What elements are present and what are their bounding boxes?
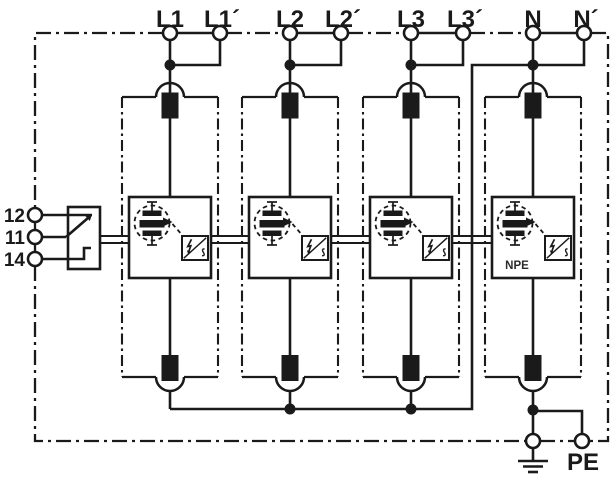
plug-contact-lower bbox=[519, 355, 547, 391]
trigger-circuit-icon bbox=[423, 236, 449, 260]
terminal-circle-12 bbox=[28, 208, 42, 222]
pe-label: PE bbox=[567, 449, 599, 476]
module-badge: NPE bbox=[505, 260, 529, 272]
signal-terminal-label: 11 bbox=[5, 228, 26, 249]
protection-module-n-pe: NPE bbox=[485, 33, 584, 434]
circuit-diagram: NPEL1L1´L2L2´L3L3´NN´121114PE bbox=[0, 0, 612, 480]
terminal-label: L3 bbox=[397, 6, 425, 33]
trigger-circuit-icon bbox=[545, 236, 571, 260]
terminal-label: L3´ bbox=[447, 6, 483, 33]
terminal-circle-14 bbox=[28, 252, 42, 266]
terminal-label: L2´ bbox=[325, 6, 361, 33]
protection-module-l3 bbox=[363, 33, 463, 409]
phase-wiring bbox=[290, 33, 341, 409]
junction-dot bbox=[285, 60, 296, 71]
junction-dot bbox=[406, 404, 417, 415]
terminal-label: L2 bbox=[276, 6, 304, 33]
terminal-label: L1´ bbox=[204, 6, 240, 33]
earth-ground-icon bbox=[518, 448, 548, 472]
trigger-circuit-icon bbox=[302, 236, 328, 260]
protection-module-l2 bbox=[242, 33, 341, 409]
signal-terminal-label: 12 bbox=[4, 206, 25, 227]
plug-contact-lower bbox=[156, 355, 184, 391]
plug-contact-lower bbox=[276, 355, 304, 391]
junction-dot bbox=[165, 60, 176, 71]
phase-wiring bbox=[411, 33, 463, 409]
terminal-label: N´ bbox=[573, 6, 598, 33]
junction-dot bbox=[528, 60, 539, 71]
changeover-switch-icon bbox=[42, 207, 100, 269]
terminal-label: L1 bbox=[156, 6, 184, 33]
junction-dot bbox=[285, 404, 296, 415]
terminal-label: N bbox=[524, 6, 541, 33]
pe-wiring bbox=[528, 405, 583, 435]
terminal-circle-earth bbox=[526, 434, 540, 448]
signal-terminal-label: 14 bbox=[4, 250, 26, 271]
surge-arrester-schematic: NPEL1L1´L2L2´L3L3´NN´121114PE bbox=[0, 0, 612, 480]
trigger-circuit-icon bbox=[182, 236, 208, 260]
junction-dot bbox=[406, 60, 417, 71]
terminal-circle-11 bbox=[28, 230, 42, 244]
plug-contact-lower bbox=[397, 355, 425, 391]
phase-wiring bbox=[170, 33, 220, 409]
neutral-rail bbox=[170, 65, 533, 415]
junction-dot bbox=[528, 405, 539, 416]
protection-module-l1 bbox=[122, 33, 220, 409]
terminal-circle-pe bbox=[575, 434, 589, 448]
